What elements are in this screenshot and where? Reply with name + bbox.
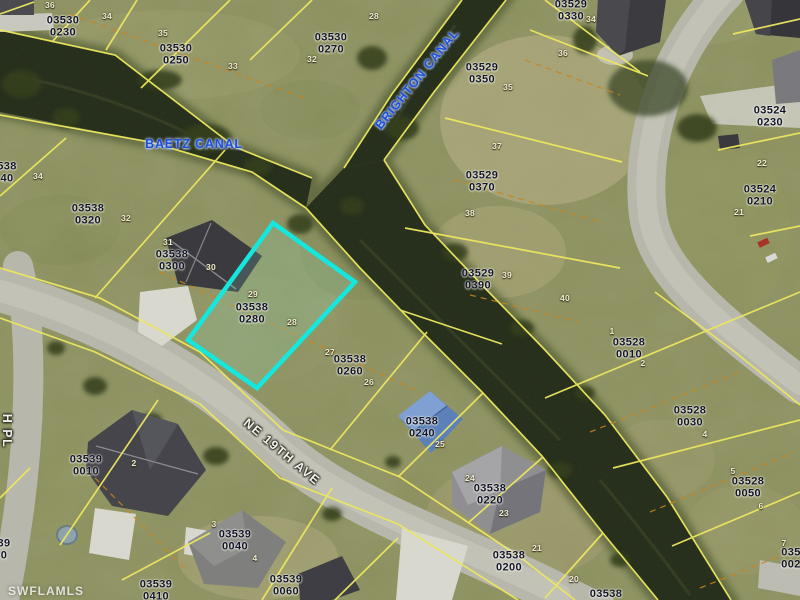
aerial-map[interactable]: 0353002300353002500353002700352903300352… bbox=[0, 0, 800, 600]
watermark: SWFLAMLS bbox=[8, 584, 84, 598]
aerial-map-art bbox=[0, 0, 800, 600]
